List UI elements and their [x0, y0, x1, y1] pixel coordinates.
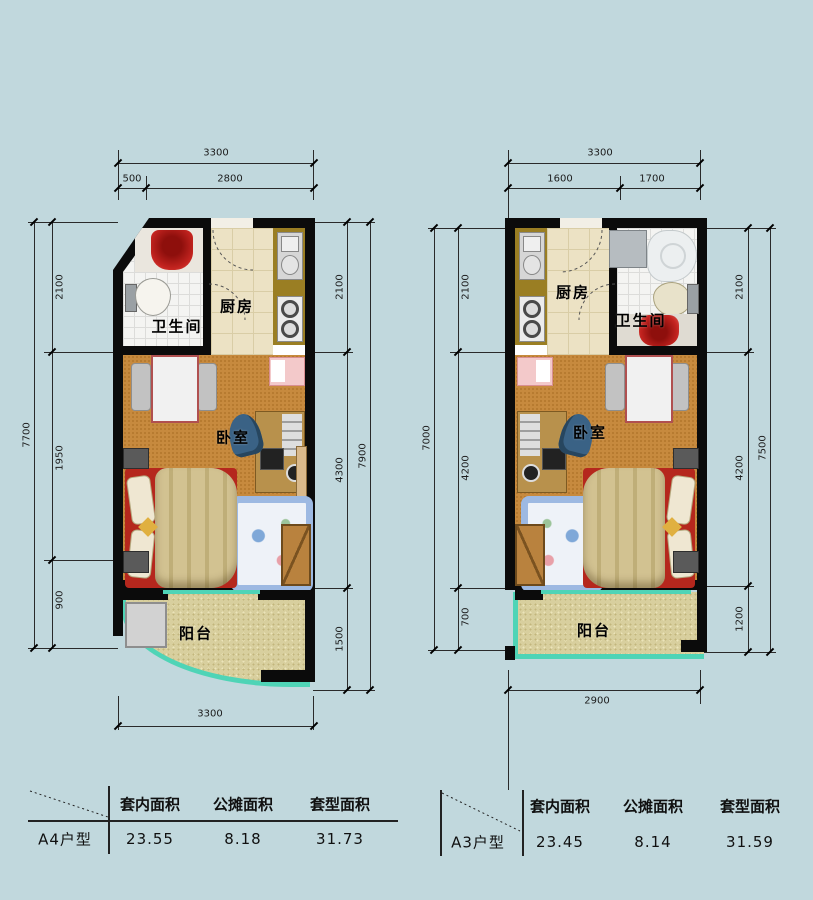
balcony-area [113, 590, 315, 690]
dim-line-right-total-a4 [370, 222, 371, 690]
wall [123, 590, 168, 600]
table-header: 套内面积 [120, 794, 180, 815]
ext-line [28, 222, 118, 223]
room-label-balcony: 阳台 [577, 620, 611, 641]
table-value: 31.59 [726, 833, 774, 851]
dim-line-bottom-a4 [118, 726, 314, 727]
table-row-label: A4户型 [38, 829, 92, 850]
dim-label: 1200 [735, 606, 746, 631]
table-diagonal [28, 788, 112, 820]
ext-line [428, 650, 506, 651]
washing-machine-icon [125, 602, 167, 648]
dim-label: 7000 [422, 425, 433, 450]
dim-label: 2900 [584, 696, 609, 707]
balcony-sill [163, 590, 260, 594]
dim-label: 4200 [461, 455, 472, 480]
wall [305, 590, 315, 678]
table-value: 23.55 [126, 830, 174, 848]
wall [113, 590, 123, 636]
wall [258, 590, 305, 600]
dim-label: 1500 [335, 626, 346, 651]
dim-label: 2100 [735, 274, 746, 299]
dim-label: 3300 [197, 709, 222, 720]
ext-line [702, 228, 776, 229]
dim-line-left-total-a4 [34, 222, 35, 648]
dim-line-top-total-a4 [118, 163, 314, 164]
table-divider [28, 820, 398, 822]
room-label-balcony: 阳台 [179, 623, 213, 644]
room-label-kitchen: 厨房 [220, 296, 254, 317]
wall [681, 640, 707, 652]
dim-label: 1950 [55, 445, 66, 470]
table-header: 套型面积 [310, 794, 370, 815]
unit-walls [113, 218, 315, 590]
room-label-bathroom: 卫生间 [615, 310, 666, 331]
dim-line-left-seg-a4 [52, 222, 53, 648]
room-label-kitchen: 厨房 [556, 282, 590, 303]
ext-line [28, 648, 118, 649]
table-divider [440, 790, 442, 856]
dim-label: 1700 [639, 174, 664, 185]
dim-line-right-total-a3 [770, 228, 771, 652]
room-label-bathroom: 卫生间 [151, 316, 202, 337]
ext-line [428, 228, 506, 229]
dim-label: 7500 [758, 435, 769, 460]
floorplan-a3: 厨房 卫生间 卧室 阳台 [505, 218, 707, 665]
dim-label: 3300 [203, 148, 228, 159]
dim-line-right-seg-a4 [347, 222, 348, 690]
wall [261, 670, 315, 682]
ext-line [702, 652, 776, 653]
dim-label: 7900 [358, 443, 369, 468]
table-header: 公摊面积 [213, 794, 273, 815]
dim-label: 1600 [547, 174, 572, 185]
table-value: 31.73 [316, 830, 364, 848]
room-label-bedroom: 卧室 [573, 422, 607, 443]
ext-line [44, 560, 116, 561]
door-arcs [505, 218, 707, 590]
dim-label: 2100 [461, 274, 472, 299]
ext-line [700, 150, 701, 200]
unit-walls [505, 218, 707, 590]
door-arcs [113, 218, 315, 590]
dim-label: 2100 [55, 274, 66, 299]
dim-label: 3300 [587, 148, 612, 159]
table-header: 套型面积 [720, 796, 780, 817]
wall [515, 590, 543, 600]
room-label-bedroom: 卧室 [216, 427, 250, 448]
ext-line [313, 150, 314, 200]
dim-line-top-total-a3 [508, 163, 700, 164]
dim-label: 4200 [735, 455, 746, 480]
dim-line-bottom-a3 [508, 690, 700, 691]
balcony-sill [541, 590, 691, 594]
floorplan-canvas: 3300 500 2800 3300 7700 2100 1950 900 21… [0, 0, 813, 900]
table-value: 8.14 [634, 833, 671, 851]
ext-line [44, 352, 116, 353]
dim-line-top-seg-a4 [118, 188, 314, 189]
ext-line [118, 150, 119, 200]
table-value: 23.45 [536, 833, 584, 851]
dim-label: 900 [55, 590, 66, 609]
dim-label: 2800 [217, 174, 242, 185]
dim-label: 2100 [335, 274, 346, 299]
table-header: 公摊面积 [623, 796, 683, 817]
wall [697, 590, 707, 646]
dim-label: 4300 [335, 457, 346, 482]
table-value: 8.18 [224, 830, 261, 848]
dim-line-left-total-a3 [434, 228, 435, 650]
dim-line-top-seg-a3 [508, 188, 700, 189]
dim-line-right-seg-a3 [748, 228, 749, 652]
table-header: 套内面积 [530, 796, 590, 817]
dim-label: 7700 [22, 422, 33, 447]
dim-label: 700 [461, 607, 472, 626]
floorplan-a4: 卫生间 厨房 卧室 阳台 [113, 218, 315, 690]
table-diagonal [440, 790, 524, 834]
dim-label: 500 [122, 174, 141, 185]
table-divider [522, 790, 524, 856]
wall [505, 646, 515, 660]
table-row-label: A3户型 [451, 832, 505, 853]
